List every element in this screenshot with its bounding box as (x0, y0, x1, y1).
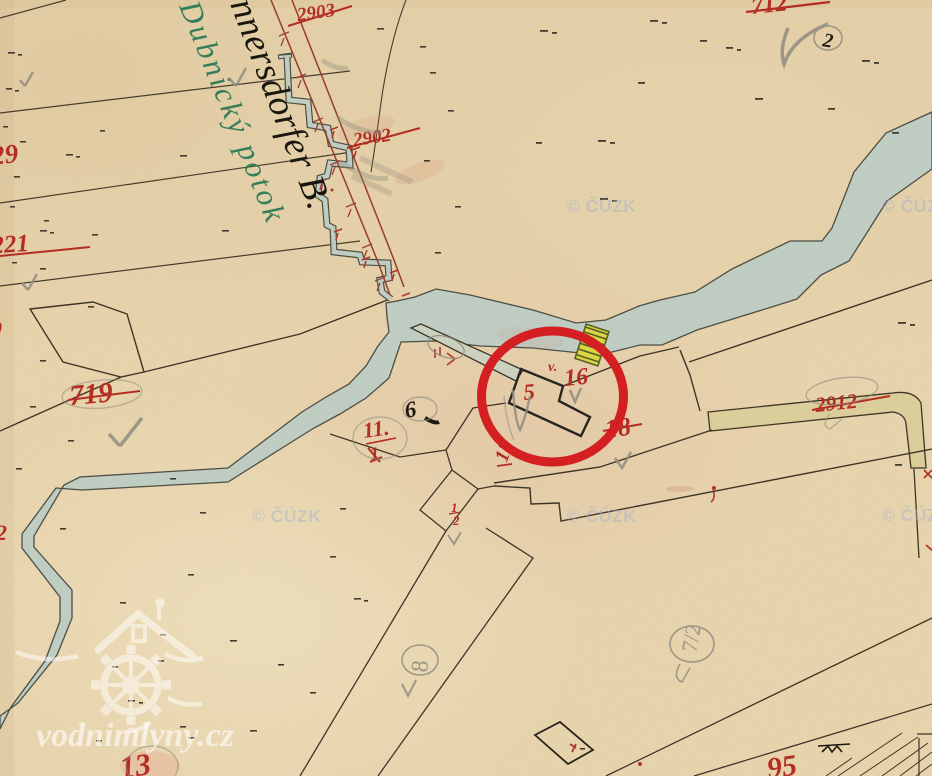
svg-text:© ČÚZK: © ČÚZK (882, 195, 932, 216)
svg-text:vodnimlyny.cz: vodnimlyny.cz (36, 717, 235, 754)
svg-text:© ČÚZK: © ČÚZK (567, 505, 636, 526)
svg-text:© ČÚZK: © ČÚZK (882, 504, 932, 525)
svg-text:© ČÚZK: © ČÚZK (567, 195, 636, 216)
svg-text:© ČÚZK: © ČÚZK (252, 505, 321, 526)
